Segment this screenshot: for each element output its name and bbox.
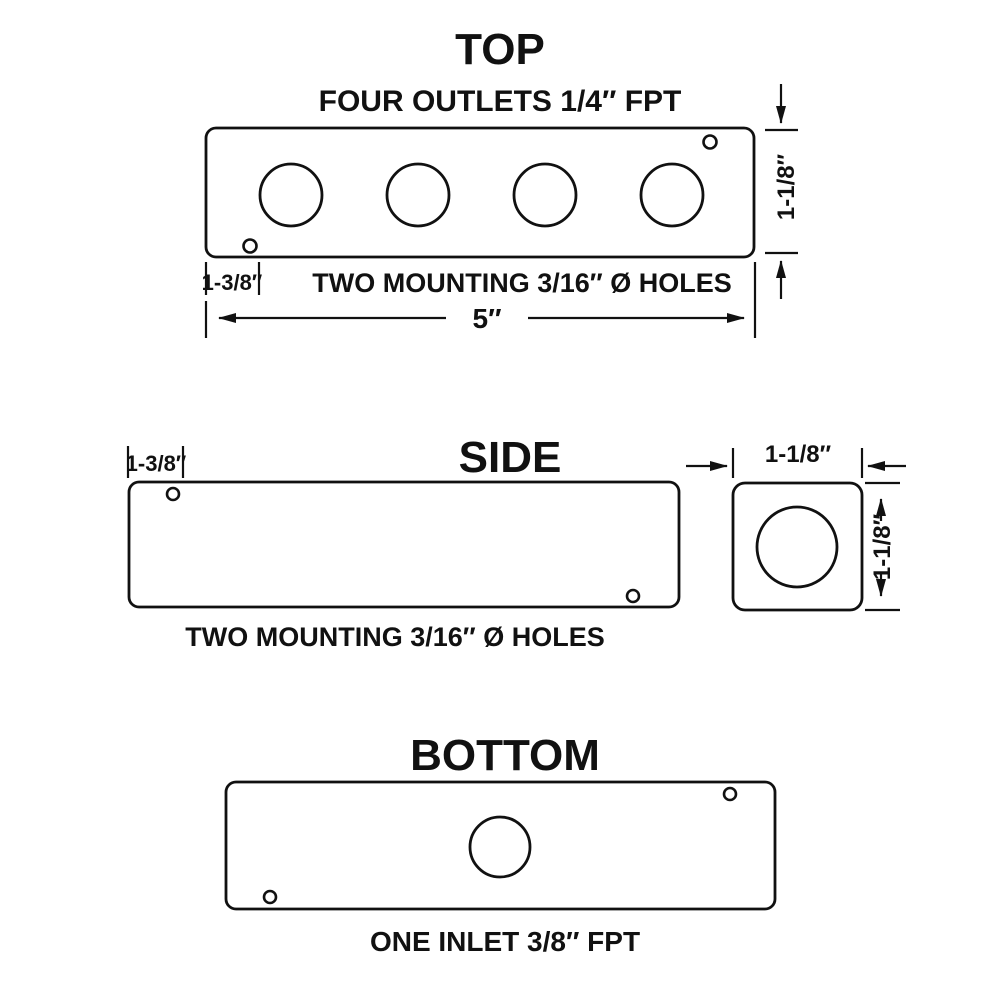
bottom-view-title: BOTTOM <box>410 731 600 780</box>
top-view-subtitle: FOUR OUTLETS 1/4″ FPT <box>319 85 682 118</box>
end-view: 1-1/8″ 1-1/8″ <box>686 441 906 610</box>
side-view: SIDE 1-3/8″ TWO MOUNTING 3/16″ Ø HOLES <box>126 433 679 652</box>
top-height-dim-label: 1-1/8″ <box>773 153 800 220</box>
top-hole-offset-label: 1-3/8″ <box>202 270 263 295</box>
bottom-view: BOTTOM ONE INLET 3/8″ FPT <box>226 731 775 957</box>
outlet-hole-2 <box>387 164 449 226</box>
outlet-hole-4 <box>641 164 703 226</box>
mounting-hole-top-left <box>167 488 179 500</box>
mounting-hole-bottom-left <box>264 891 276 903</box>
side-hole-offset-label: 1-3/8″ <box>126 451 187 476</box>
top-mounting-note: TWO MOUNTING 3/16″ Ø HOLES <box>312 268 731 298</box>
end-height-dim-label: 1-1/8″ <box>869 513 896 580</box>
side-mounting-note: TWO MOUNTING 3/16″ Ø HOLES <box>185 622 604 652</box>
inlet-hole <box>470 817 530 877</box>
mounting-hole-top-right <box>724 788 736 800</box>
side-view-title: SIDE <box>459 433 562 482</box>
side-view-outline <box>129 482 679 607</box>
end-port-hole <box>757 507 837 587</box>
technical-drawing-page: TOP FOUR OUTLETS 1/4″ FPT 1-1/8″ 1-3/8″ … <box>0 0 1000 1000</box>
end-width-dim-label: 1-1/8″ <box>765 441 832 468</box>
top-view: TOP FOUR OUTLETS 1/4″ FPT 1-1/8″ 1-3/8″ … <box>202 25 800 338</box>
outlet-hole-3 <box>514 164 576 226</box>
bottom-inlet-note: ONE INLET 3/8″ FPT <box>370 926 640 957</box>
mounting-hole-bottom-left <box>244 240 257 253</box>
top-width-dim-label: 5″ <box>473 303 502 334</box>
mounting-hole-bottom-right <box>627 590 639 602</box>
mounting-hole-top-right <box>704 136 717 149</box>
outlet-hole-1 <box>260 164 322 226</box>
manifold-drawing: TOP FOUR OUTLETS 1/4″ FPT 1-1/8″ 1-3/8″ … <box>0 0 1000 1000</box>
top-view-title: TOP <box>455 25 545 74</box>
